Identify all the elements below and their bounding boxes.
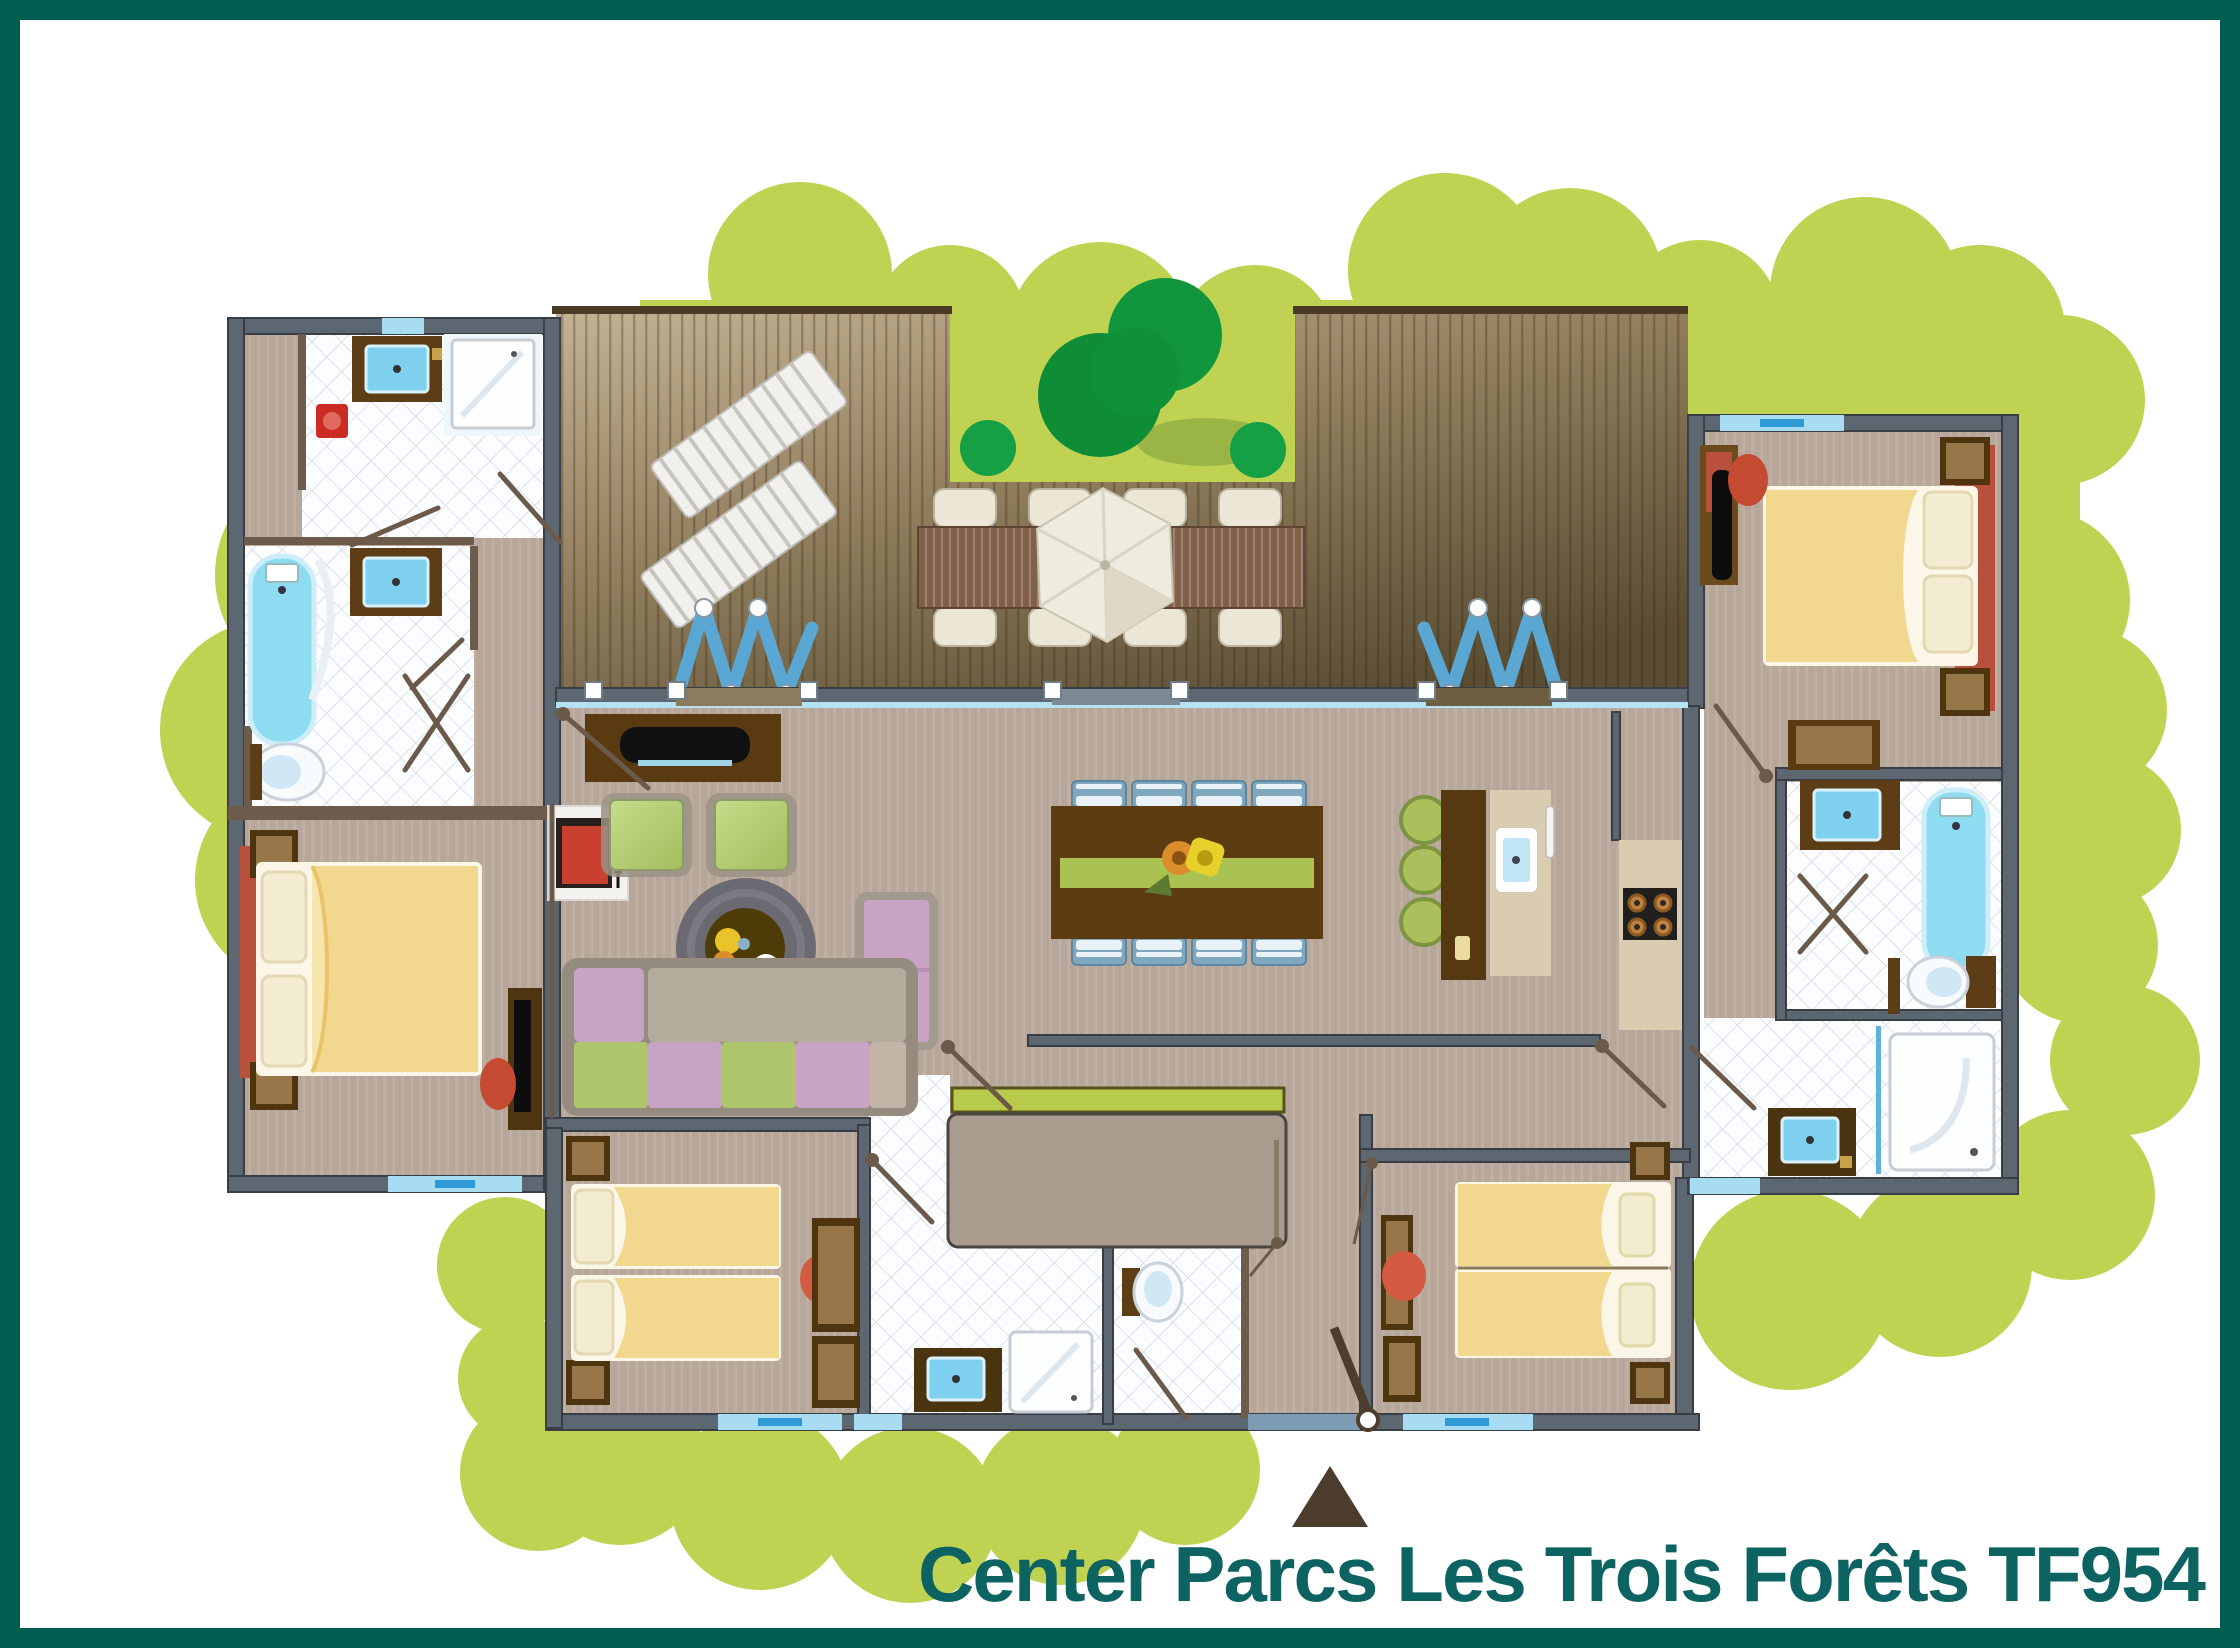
svg-text:Center Parcs Les Trois Forêts: Center Parcs Les Trois Forêts TF954 xyxy=(918,1530,2206,1618)
